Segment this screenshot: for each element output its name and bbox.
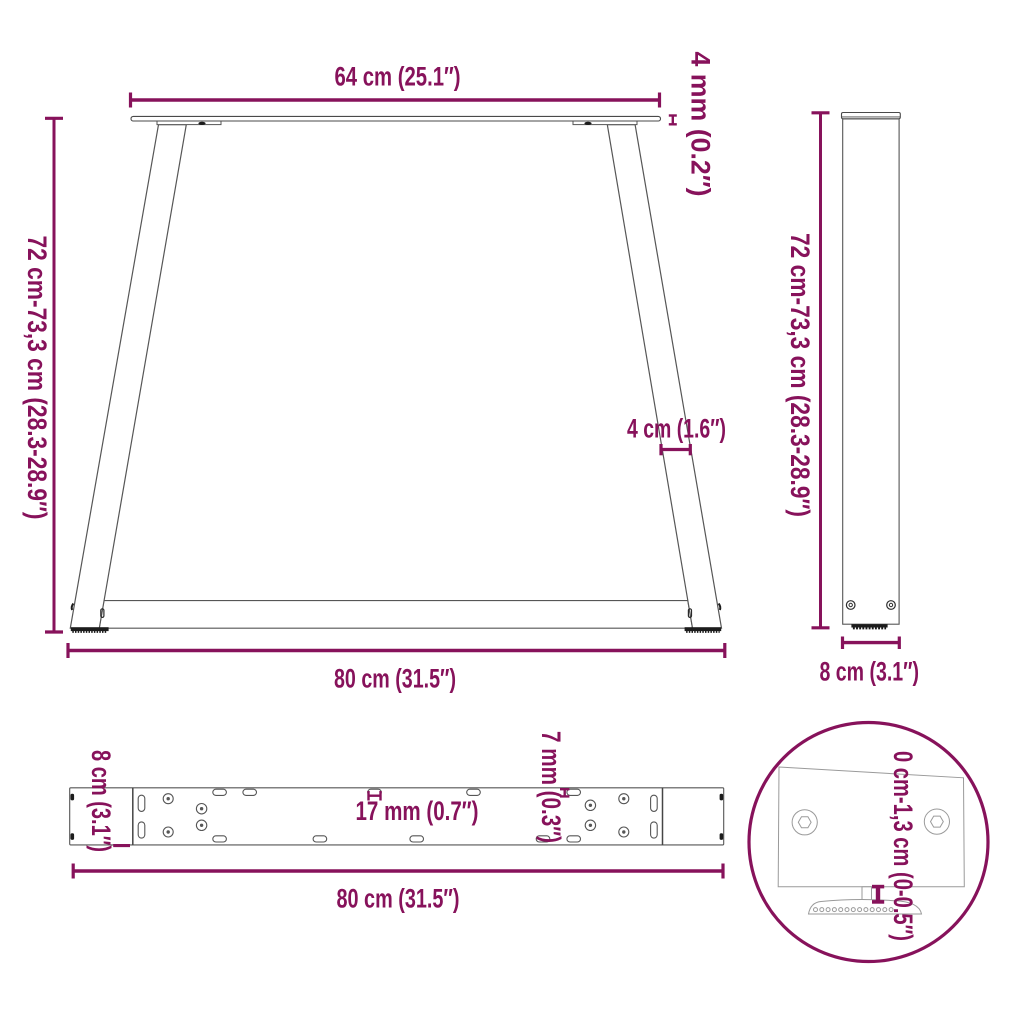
svg-text:4 cm (1.6″): 4 cm (1.6″) bbox=[627, 414, 726, 444]
svg-text:0 cm-1,3 cm (0-0.5″): 0 cm-1,3 cm (0-0.5″) bbox=[888, 751, 918, 941]
svg-text:80 cm (31.5″): 80 cm (31.5″) bbox=[337, 884, 460, 914]
svg-text:17 mm (0.7″): 17 mm (0.7″) bbox=[356, 796, 479, 826]
svg-text:7 mm (0.3″): 7 mm (0.3″) bbox=[536, 731, 566, 843]
svg-text:8 cm (3.1″): 8 cm (3.1″) bbox=[86, 750, 116, 852]
svg-text:4 mm (0.2″): 4 mm (0.2″) bbox=[686, 52, 716, 197]
svg-text:64 cm (25.1″): 64 cm (25.1″) bbox=[335, 62, 461, 92]
svg-text:72 cm-73,3 cm (28.3-28.9″): 72 cm-73,3 cm (28.3-28.9″) bbox=[22, 236, 52, 520]
svg-text:80 cm (31.5″): 80 cm (31.5″) bbox=[334, 664, 456, 694]
svg-text:8 cm (3.1″): 8 cm (3.1″) bbox=[820, 657, 920, 687]
svg-text:72 cm-73,3 cm (28.3-28.9″): 72 cm-73,3 cm (28.3-28.9″) bbox=[785, 233, 815, 517]
